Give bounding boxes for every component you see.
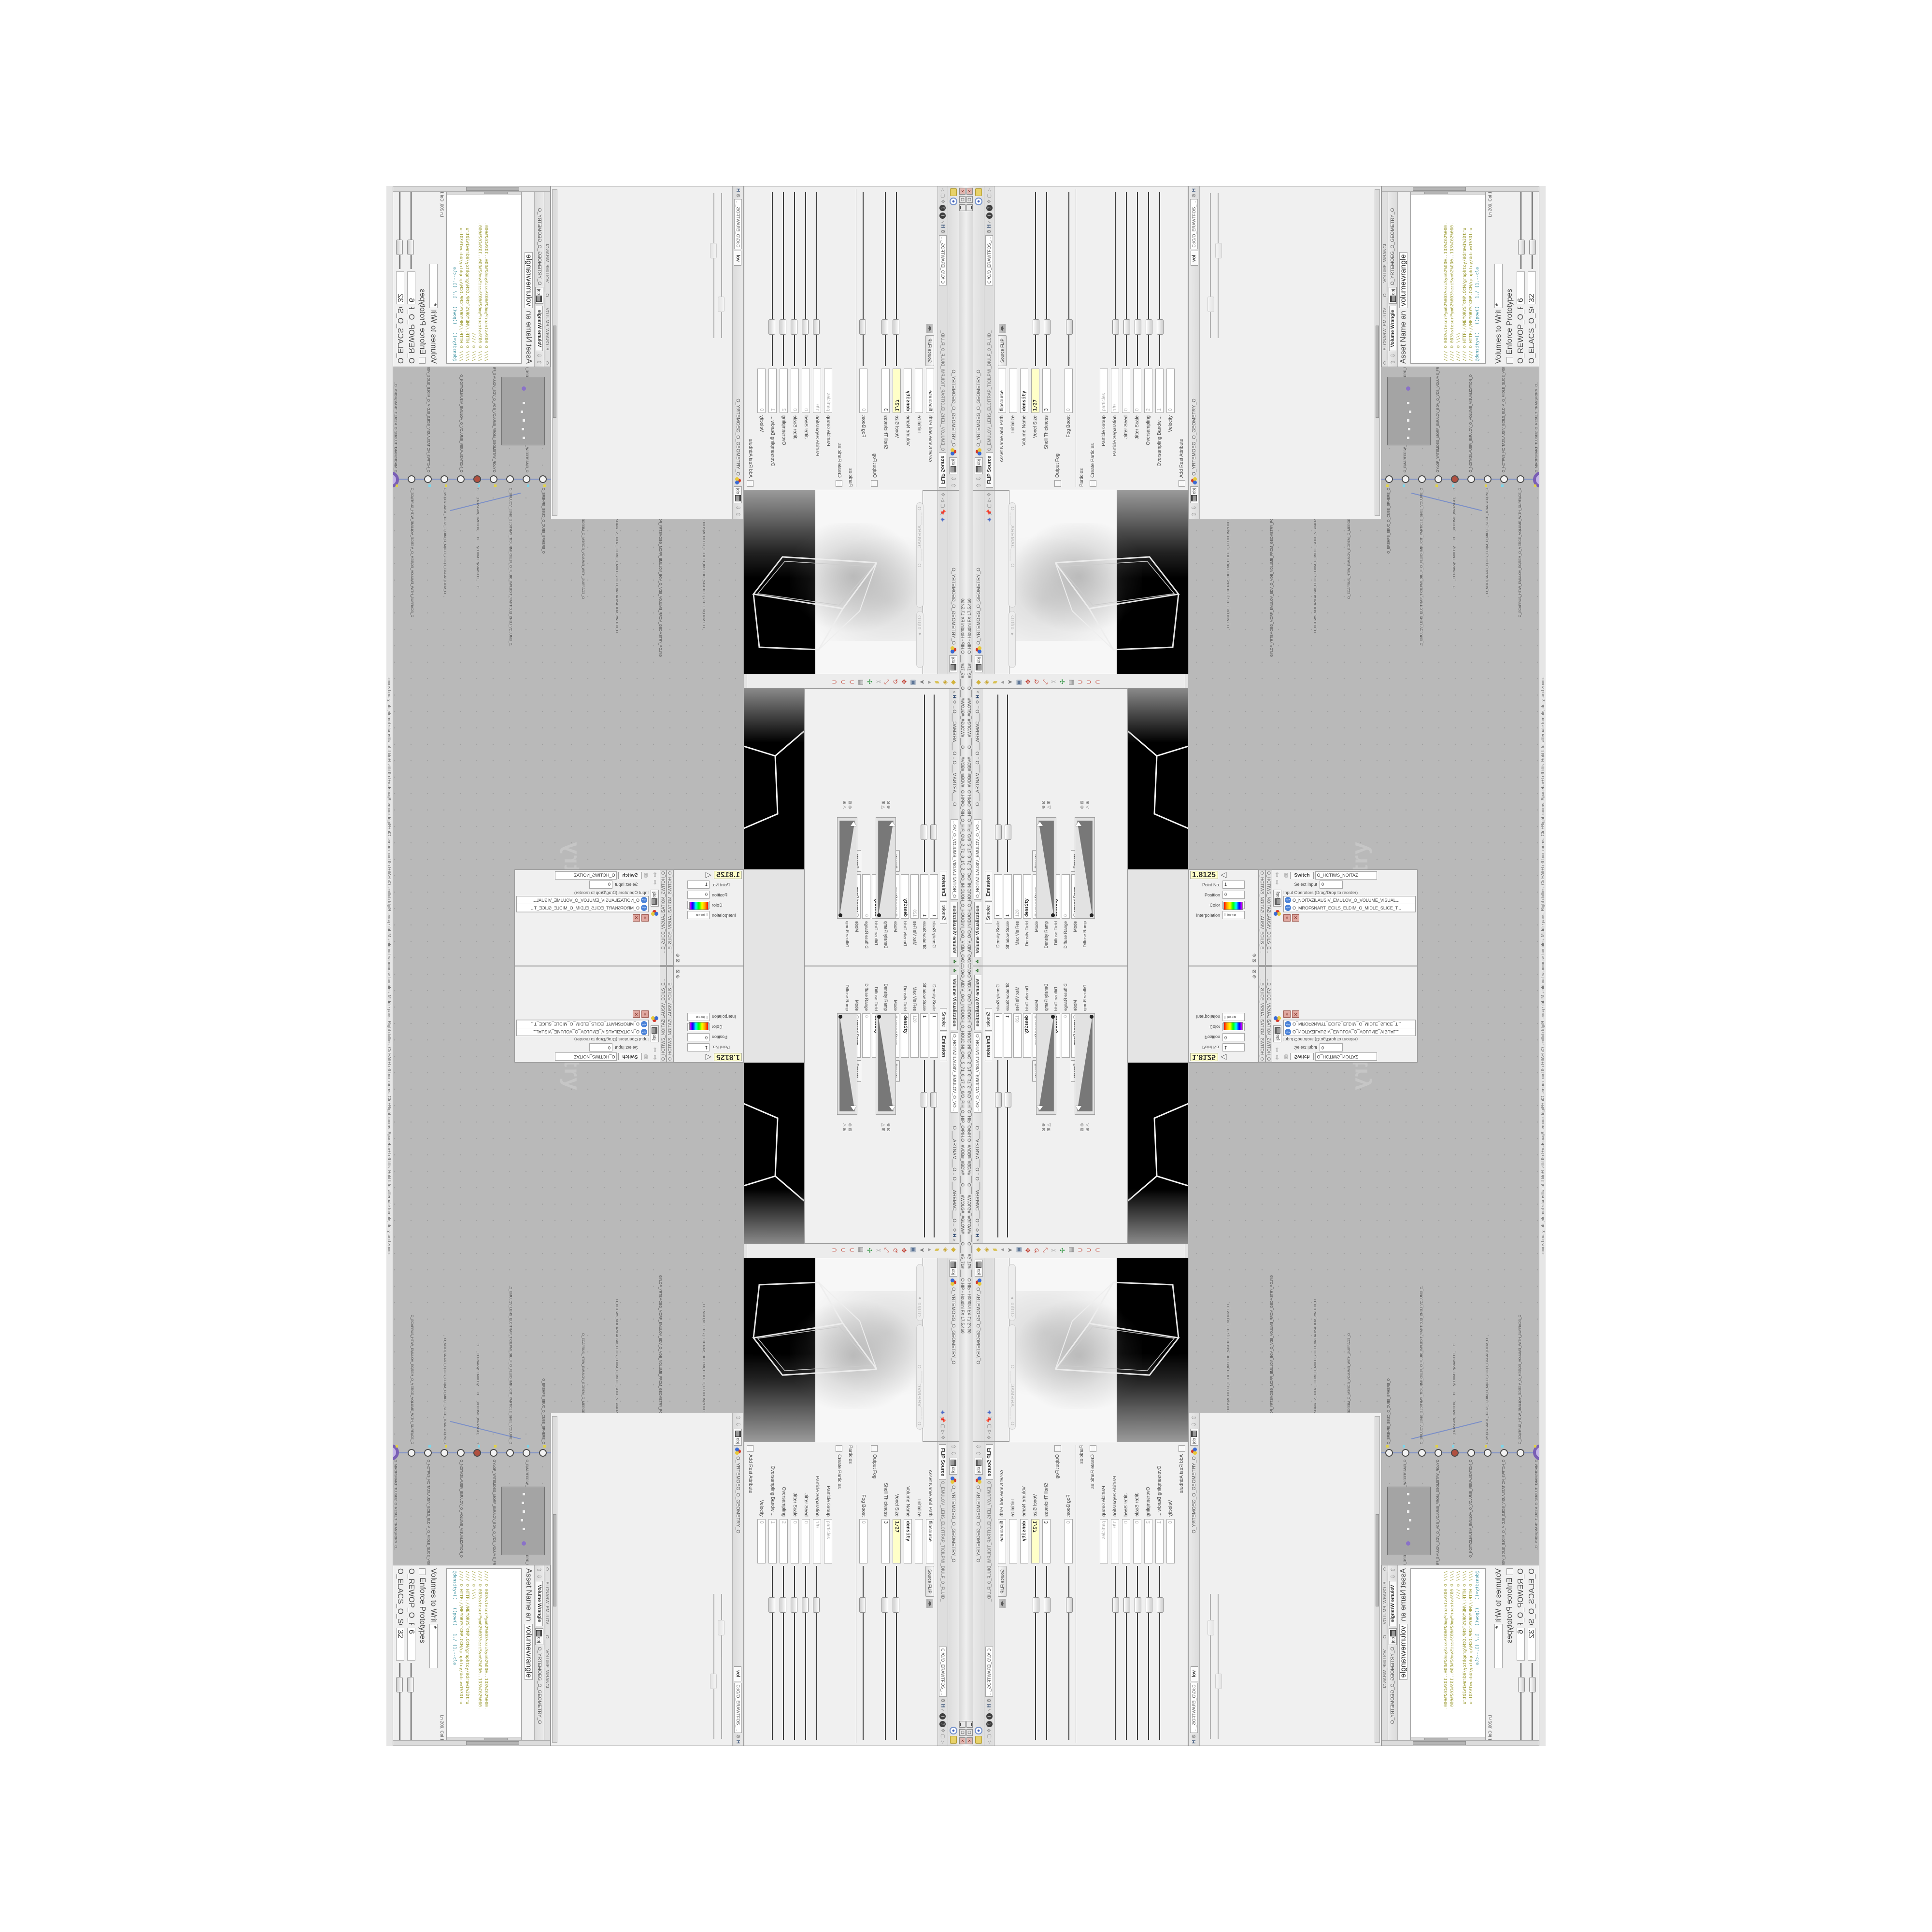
obj-context-chip[interactable]: obj (1389, 1628, 1397, 1645)
param-value-field[interactable]: 1/9 (1111, 1519, 1119, 1563)
node-flag[interactable] (1419, 1445, 1421, 1448)
checkbox[interactable] (871, 1445, 878, 1452)
viewport-icon[interactable]: 📌 (940, 510, 946, 516)
ramp-widget[interactable] (837, 817, 857, 919)
search-icon[interactable]: ⌕ (987, 220, 992, 223)
delete-input-button[interactable]: ✕ (1283, 1010, 1291, 1018)
ramp-widget[interactable] (1075, 817, 1095, 919)
faint-slider[interactable] (713, 193, 714, 338)
param-slider[interactable] (1046, 192, 1047, 366)
param-slider[interactable] (1520, 192, 1521, 269)
node-flag[interactable] (1452, 1445, 1454, 1448)
delete-input-button[interactable]: ✕ (641, 914, 649, 922)
reorder-icon[interactable]: ↩ (641, 905, 647, 911)
param-slider[interactable] (795, 192, 796, 366)
tool-icon[interactable]: ⤡ (884, 679, 889, 685)
param-slider[interactable] (1520, 1663, 1521, 1740)
param-slider[interactable] (1126, 192, 1127, 366)
node-flag[interactable] (494, 1445, 497, 1448)
asset-name-field[interactable]: volumewrangle (525, 1624, 533, 1680)
tab-switch[interactable]: Switch (1290, 872, 1313, 879)
info-icon[interactable]: i (940, 213, 946, 219)
reorder-icon[interactable]: ↩ (1285, 1021, 1291, 1027)
reorder-icon[interactable]: ↩ (1285, 897, 1291, 903)
maximize-button[interactable]: ❐ (960, 196, 966, 203)
viewport-icon[interactable]: ▷ (987, 498, 992, 502)
param-value-field[interactable]: density (1023, 874, 1031, 919)
sop-node[interactable] (473, 1449, 481, 1457)
param-value-field[interactable] (1009, 369, 1017, 413)
param-slider[interactable] (795, 1566, 796, 1740)
nav-up-icon[interactable]: ⇧ (1390, 1567, 1396, 1572)
param-slider[interactable] (863, 192, 864, 366)
param-value-field[interactable]: 32 (396, 1628, 404, 1661)
node-flag[interactable] (543, 484, 546, 487)
param-slider[interactable] (1532, 192, 1533, 269)
sticky-note-icon[interactable] (975, 188, 982, 196)
tool-icon[interactable]: ⤡ (1043, 1248, 1048, 1254)
vex-code-editor[interactable]: //// © 0D3%steserPym62%0D3%eziSym62%000.… (446, 1568, 522, 1743)
param-slider[interactable] (896, 1566, 897, 1740)
param-value-field[interactable]: 128 (911, 1013, 919, 1058)
nav-up-icon[interactable]: ⇧ (1275, 872, 1279, 878)
param-value-field[interactable]: 0 (1166, 1519, 1175, 1563)
tool-icon[interactable]: ◈ (943, 679, 948, 685)
obj-context-chip[interactable]: obj (535, 1628, 543, 1645)
sop-node[interactable] (1451, 475, 1459, 483)
param-value-field[interactable]: 128 (1013, 1013, 1022, 1058)
checkbox[interactable] (836, 480, 843, 487)
param-value-field[interactable]: 0 (791, 1519, 799, 1563)
tab-emission[interactable]: Emission (940, 1032, 947, 1061)
flip-path-field[interactable]: C:/O/O_ERAWTFOS_... (939, 235, 947, 285)
tab-flip-source[interactable]: FLIP Source (939, 452, 947, 488)
viewport-icon[interactable]: ◉ (987, 517, 992, 522)
tab-mantra[interactable]: O ___ARTNAM___O... (952, 1126, 957, 1175)
tool-icon[interactable]: ✂ (876, 1248, 881, 1254)
reorder-icon[interactable]: ↩ (641, 1029, 647, 1035)
node-flag[interactable] (396, 1445, 398, 1448)
tab-smoke[interactable]: Smoke (985, 901, 992, 924)
minimize-button[interactable]: ▁ (966, 1721, 973, 1728)
sop-node[interactable] (539, 1449, 547, 1457)
search-icon[interactable]: ⌕ (952, 691, 957, 694)
ramp-buttons[interactable]: ⊕ ⊠△ ⊞ (1080, 1120, 1090, 1135)
param-value-field[interactable]: 1 (1222, 881, 1245, 889)
param-value-field[interactable]: 0 (1122, 1519, 1130, 1563)
camera-pill[interactable]: O ____AREMAC____ O (916, 1324, 923, 1430)
flip-path-field[interactable]: C:/O/O_ERAWTFOS_... (985, 1647, 993, 1697)
checkbox[interactable] (1054, 480, 1061, 487)
close-button[interactable]: ✕ (966, 188, 973, 195)
operator-list-item[interactable]: ↩ O_NOITAZILAUSIV_EMULOV_O_VOLUME_VISUAL… (517, 1028, 648, 1036)
pin-target-icon[interactable] (950, 1727, 957, 1734)
param-value-field[interactable]: 2 (1144, 369, 1152, 413)
gear-icon[interactable]: ⚙ (987, 1698, 992, 1703)
sop-node[interactable] (1402, 475, 1409, 483)
wrangle-scrollbar[interactable] (1382, 186, 1546, 192)
param-slider[interactable] (1007, 695, 1008, 872)
param-slider[interactable] (1068, 1566, 1069, 1740)
node-flag[interactable] (1468, 1445, 1471, 1448)
minimize-button[interactable]: ▁ (966, 204, 973, 211)
tab-switch[interactable]: Switch (618, 872, 641, 879)
sop-node[interactable] (1402, 1449, 1409, 1457)
operator-list-item[interactable]: ↩ O_MROFSNART_ECILS_ELDIM_O_MIDLE_SLICE_… (1284, 904, 1415, 912)
camera-pill[interactable]: O ____AREMAC____ O (1009, 502, 1016, 608)
nav-down-icon[interactable]: ⇩ (951, 476, 956, 481)
tab-flip-source[interactable]: FLIP Source (939, 1444, 947, 1480)
param-value-field[interactable]: 1/9 (813, 1519, 821, 1563)
tool-icon[interactable]: ◈ (984, 1248, 989, 1254)
gear-icon[interactable]: ⚙ (987, 229, 992, 234)
viewport-icon[interactable]: ▷ (940, 498, 946, 502)
viewport-icon[interactable]: ✥ (940, 1435, 946, 1439)
sop-node[interactable] (408, 475, 415, 483)
viewport-icon[interactable]: ✥ (940, 493, 946, 497)
obj-context-chip[interactable]: obj (734, 1429, 742, 1446)
delete-input-button[interactable]: ✕ (641, 1010, 649, 1018)
maximize-button[interactable]: ❐ (966, 1729, 973, 1736)
param-slider[interactable] (1126, 1566, 1127, 1740)
param-value-field[interactable]: 0 (1222, 891, 1245, 899)
sop-node[interactable] (1500, 1449, 1508, 1457)
operator-list-item[interactable]: ↩ O_NOITAZILAUSIV_EMULOV_O_VOLUME_VISUAL… (1284, 1028, 1415, 1036)
node-flag[interactable] (1452, 484, 1454, 487)
asset-name-field[interactable]: volumewrangle (1399, 252, 1407, 308)
param-slider[interactable] (1159, 1566, 1160, 1740)
param-value-field[interactable]: 6 (407, 271, 415, 304)
param-value-field[interactable]: 0 (1133, 1519, 1141, 1563)
color-swatch[interactable] (689, 902, 709, 910)
node-flag[interactable] (412, 1445, 414, 1448)
param-value-field[interactable]: 1 (1155, 1519, 1164, 1563)
select-input-field[interactable]: 0 (1320, 1044, 1343, 1052)
sop-node[interactable] (1435, 475, 1442, 483)
delete-input-button[interactable]: ✕ (633, 1010, 640, 1018)
mid-path-field[interactable]: C:/O/O_ERAWTFOS_... (1190, 1683, 1198, 1733)
nav-up-icon[interactable]: ⇧ (1390, 360, 1396, 365)
ramp-buttons[interactable]: ⊕ ⊠△ ⊞ (1080, 797, 1090, 812)
enforce-checkbox[interactable] (419, 1568, 426, 1575)
tab-mantra[interactable]: O ___ARTNAM___O... (975, 1126, 980, 1175)
param-slider[interactable] (997, 695, 998, 872)
node-flag[interactable] (1386, 1445, 1389, 1448)
param-value-field[interactable]: 0 (802, 1519, 810, 1563)
tab-camera[interactable]: O ___AREMAC___O... (975, 706, 980, 755)
tool-icon[interactable]: ✣ (867, 679, 872, 685)
ramp-add-remove[interactable]: ⊕⊠ (676, 953, 680, 964)
param-value-field[interactable]: density (904, 369, 912, 413)
enforce-checkbox[interactable] (419, 357, 426, 364)
ortho-pill[interactable]: Ortho ▾ (916, 611, 923, 668)
param-slider[interactable] (772, 1566, 773, 1740)
param-value-field[interactable]: 0 (1062, 874, 1070, 919)
operator-list-item[interactable]: ↩ O_NOITAZILAUSIV_EMULOV_O_VOLUME_VISUAL… (1284, 896, 1415, 904)
nav-down-icon[interactable]: ⇩ (735, 505, 741, 510)
param-slider[interactable] (772, 192, 773, 366)
node-flag[interactable] (1386, 484, 1389, 487)
viewport-geometry-label[interactable]: O_YRTEMOEG_O_GEOMETRY_O (951, 1287, 956, 1364)
gear-icon[interactable]: ⚙ (736, 1734, 741, 1739)
sticky-note-icon[interactable] (975, 1736, 982, 1744)
tool-icon[interactable]: ➤ (1008, 679, 1013, 685)
tool-icon[interactable]: ◈ (984, 679, 989, 685)
search-icon[interactable]: ⌕ (940, 1709, 946, 1712)
param-value-field[interactable]: 0 (1133, 369, 1141, 413)
camera-pill[interactable]: O ____AREMAC____ O (1009, 1324, 1016, 1430)
ramp-buttons[interactable]: ⊕ ⊠△ ⊞ (881, 1120, 891, 1135)
checkbox[interactable] (1090, 480, 1096, 487)
switch-name-field[interactable]: O_HCTIWS_NOITAZ (555, 1052, 617, 1061)
asset-name-field[interactable]: flipsource (926, 1519, 934, 1563)
tool-icon[interactable]: ⊃ (849, 1248, 854, 1254)
param-value-field[interactable]: 0 (859, 369, 867, 413)
tool-icon[interactable]: ✣ (867, 1248, 872, 1254)
asset-name-field[interactable]: volumewrangle (1399, 1624, 1407, 1680)
checkbox[interactable] (747, 1445, 754, 1452)
node-flag[interactable] (543, 1445, 546, 1448)
breadcrumb[interactable]: O_YRTEMOEG_O_GEOMETRY_O (537, 1647, 542, 1724)
node-flag[interactable] (428, 1445, 431, 1448)
sop-node[interactable] (1484, 475, 1492, 483)
param-slider[interactable] (1046, 1566, 1047, 1740)
tool-icon[interactable]: ⊂ (1095, 1248, 1100, 1254)
param-value-field[interactable]: 2 (780, 369, 788, 413)
breadcrumb[interactable]: O_YRTEMOEG_O_GEOMETRY_O (1192, 398, 1197, 476)
param-value-field[interactable]: 0 (1166, 369, 1175, 413)
tab-vol[interactable]: vol (1191, 251, 1198, 265)
close-button[interactable]: ✕ (960, 1737, 966, 1744)
sop-node[interactable] (440, 1449, 448, 1457)
viewport-icon[interactable]: ◉ (940, 1410, 946, 1415)
sop-node[interactable] (1517, 1449, 1524, 1457)
volumes-field[interactable]: * (429, 1624, 438, 1668)
tool-icon[interactable]: ✂ (876, 679, 881, 685)
tool-icon[interactable]: ◈ (943, 1248, 948, 1254)
tab-mantra[interactable]: O ___ARTNAM___O... (952, 757, 957, 806)
node-flag[interactable] (1534, 484, 1536, 487)
faint-slider[interactable] (721, 1594, 722, 1739)
node-flag[interactable] (445, 1445, 447, 1448)
enforce-checkbox[interactable] (1506, 357, 1513, 364)
gear-icon[interactable]: ⚙ (1192, 1734, 1197, 1739)
tool-icon[interactable]: ◂ (1001, 679, 1004, 685)
param-slider[interactable] (400, 192, 401, 269)
horizontal-scrollbar[interactable] (552, 189, 557, 516)
nav-down-icon[interactable]: ⇩ (735, 1422, 741, 1427)
search-icon[interactable]: ⌕ (975, 1238, 980, 1241)
switch-name-field[interactable]: O_HCTIWS_NOITAZ (1315, 871, 1377, 880)
obj-context-chip[interactable]: obj (1273, 890, 1281, 907)
node-flag[interactable] (511, 1445, 513, 1448)
param-value-field[interactable]: 1 (1222, 1043, 1245, 1051)
param-value-field[interactable]: 0 (859, 1519, 867, 1563)
tool-icon[interactable]: ▥ (1068, 679, 1074, 685)
sop-node[interactable] (490, 1449, 497, 1457)
mid-path-field[interactable]: C:/O/O_ERAWTFOS_... (1190, 199, 1198, 249)
viewport-icon[interactable]: ▢ (940, 1424, 946, 1428)
reorder-icon[interactable]: ↩ (1285, 1029, 1291, 1035)
param-value-field[interactable] (1009, 1519, 1017, 1563)
tool-icon[interactable]: ◂ (928, 1248, 931, 1254)
faint-slider[interactable] (721, 193, 722, 338)
nav-down-icon[interactable]: ⇩ (653, 1047, 657, 1052)
param-value-field[interactable]: 1 (921, 1013, 929, 1058)
tool-icon[interactable]: ▥ (858, 1248, 864, 1254)
asset-name-field[interactable]: flipsource (998, 369, 1006, 413)
checkbox[interactable] (1090, 1445, 1096, 1452)
param-value-field[interactable]: 0 (802, 369, 810, 413)
enforce-checkbox[interactable] (1506, 1568, 1513, 1575)
delete-input-button[interactable]: ✕ (1292, 914, 1299, 922)
param-value-field[interactable]: 0 (757, 1519, 766, 1563)
param-value-field[interactable]: 1/27 (1031, 369, 1039, 413)
sop-node[interactable] (1484, 1449, 1492, 1457)
ramp-value-field[interactable]: 1.8125 (1190, 1053, 1218, 1062)
gear-icon[interactable]: ⚙ (940, 229, 946, 234)
gear-icon[interactable]: ⚙ (975, 700, 980, 704)
reorder-icon[interactable]: ↩ (641, 1021, 647, 1027)
tool-icon[interactable]: ◆ (951, 1248, 956, 1254)
nav-up-icon[interactable]: ⇧ (1275, 1054, 1279, 1060)
ramp-widget[interactable] (837, 1013, 857, 1115)
node-flag[interactable] (428, 484, 431, 487)
operator-list-item[interactable]: ↩ O_MROFSNART_ECILS_ELDIM_O_MIDLE_SLICE_… (517, 1020, 648, 1028)
pin-target-icon[interactable] (975, 198, 982, 205)
param-slider[interactable] (817, 192, 818, 366)
obj-context-chip[interactable]: obj (651, 890, 659, 907)
viewport-icon[interactable]: ▢ (987, 1424, 992, 1428)
sop-node[interactable] (457, 1449, 465, 1457)
tool-icon[interactable]: ✥ (901, 1248, 907, 1254)
nav-down-icon[interactable]: ⇩ (976, 1451, 981, 1456)
tool-icon[interactable]: ↻ (1034, 679, 1039, 685)
param-slider[interactable] (400, 1663, 401, 1740)
sop-node[interactable] (473, 475, 481, 483)
param-value-field[interactable]: 3 (1042, 369, 1051, 413)
flip-path-field[interactable]: C:/O/O_ERAWTFOS_... (985, 235, 993, 285)
checkbox[interactable] (836, 1445, 843, 1452)
wrangle-scrollbar[interactable] (386, 186, 550, 192)
tab-volume-wrangle[interactable]: Volume Wrangle (1389, 1581, 1396, 1626)
tool-icon[interactable]: ↻ (1034, 1248, 1039, 1254)
sop-node[interactable] (1385, 1449, 1393, 1457)
tool-icon[interactable]: ⊃ (1086, 679, 1092, 685)
gear-icon[interactable]: ⚙ (952, 1228, 957, 1232)
nav-down-icon[interactable]: ⇩ (1390, 1574, 1396, 1579)
tab-volume-visualization[interactable]: Volume Visualization (974, 975, 981, 1030)
select-input-field[interactable]: 0 (589, 1044, 612, 1052)
param-value-field[interactable]: 0 (1222, 1033, 1245, 1041)
node-flag[interactable] (494, 484, 497, 487)
maximize-button[interactable]: ❐ (960, 1729, 966, 1736)
param-slider[interactable] (924, 1060, 925, 1237)
sop-node[interactable] (1517, 475, 1524, 483)
reorder-icon[interactable]: ↩ (641, 897, 647, 903)
tab-vol[interactable]: vol (735, 251, 742, 265)
tab-vol[interactable]: vol (735, 1666, 742, 1681)
nav-up-icon[interactable]: ⇧ (951, 483, 956, 488)
tab-volume-visualization[interactable]: Volume Visualization (951, 902, 958, 957)
breadcrumb[interactable]: O_YRTEMOEG_O_GEOMETRY_O (1390, 1647, 1395, 1724)
tab-camera[interactable]: O ___AREMAC___O... (975, 1177, 980, 1226)
nav-down-icon[interactable]: ⇩ (1191, 1422, 1197, 1427)
obj-context-chip[interactable]: obj (950, 1458, 958, 1475)
tool-icon[interactable]: ⤡ (884, 1248, 889, 1254)
nav-up-icon[interactable]: ⇧ (537, 360, 542, 365)
network-minimap[interactable] (501, 377, 545, 445)
param-value-field[interactable]: density (901, 874, 909, 919)
info-icon[interactable]: i (986, 213, 993, 219)
tool-icon[interactable]: ↻ (893, 1248, 898, 1254)
param-value-field[interactable]: particles (824, 1519, 832, 1563)
param-slider[interactable] (1068, 192, 1069, 366)
nav-down-icon[interactable]: ⇩ (976, 476, 981, 481)
gear-icon[interactable]: ⚙ (975, 1228, 980, 1232)
ortho-pill[interactable]: Ortho ▾ (916, 1264, 923, 1321)
node-flag[interactable] (1419, 484, 1421, 487)
viewport-icon[interactable]: ▷ (987, 1430, 992, 1434)
scene-viewport[interactable] (743, 490, 923, 674)
horizontal-scrollbar[interactable] (552, 1416, 557, 1743)
help-icon[interactable]: ? (940, 205, 946, 211)
viewport-geometry-label[interactable]: O_YRTEMOEG_O_GEOMETRY_O (976, 1287, 981, 1364)
param-value-field[interactable]: particles (824, 369, 832, 413)
param-slider[interactable] (783, 1566, 784, 1740)
sop-node[interactable] (424, 475, 432, 483)
sop-node[interactable] (457, 475, 465, 483)
param-value-field[interactable]: 0 (757, 369, 766, 413)
param-value-field[interactable]: 0 (1065, 369, 1073, 413)
ramp-value-field[interactable]: 1.8125 (714, 871, 742, 879)
param-value-field[interactable]: 0 (1122, 369, 1130, 413)
viewport-icon[interactable]: ▢ (940, 503, 946, 508)
tool-icon[interactable]: ▰ (993, 679, 997, 685)
tool-icon[interactable]: ⊃ (849, 679, 854, 685)
param-value-field[interactable]: 0 (1062, 1013, 1070, 1058)
param-value-field[interactable]: particles (1100, 1519, 1108, 1563)
sop-node[interactable] (1500, 475, 1508, 483)
scene-viewport[interactable] (743, 1258, 923, 1442)
param-slider[interactable] (1137, 192, 1138, 366)
operator-list-item[interactable]: ↩ O_MROFSNART_ECILS_ELDIM_O_MIDLE_SLICE_… (1284, 1020, 1415, 1028)
tool-icon[interactable]: ▣ (1016, 1248, 1022, 1254)
network-minimap[interactable] (1387, 377, 1431, 445)
param-value-field[interactable]: 1 (930, 874, 938, 919)
breadcrumb[interactable]: O_YRTEMOEG_O_GEOMETRY_O (736, 1456, 741, 1534)
select-input-field[interactable]: 0 (589, 881, 612, 889)
obj-context-chip[interactable]: obj (950, 1260, 958, 1277)
tool-icon[interactable]: ▥ (1068, 1248, 1074, 1254)
param-value-field[interactable]: 32 (1528, 1628, 1536, 1661)
param-value-field[interactable]: 2 (1144, 1519, 1152, 1563)
obj-context-chip[interactable]: obj (975, 655, 983, 672)
param-slider[interactable] (1007, 1060, 1008, 1237)
node-flag[interactable] (1534, 1445, 1536, 1448)
help-icon[interactable]: ? (986, 1721, 993, 1727)
param-value-field[interactable]: Linear (687, 911, 710, 919)
node-flag[interactable] (1518, 484, 1520, 487)
node-flag[interactable] (1435, 484, 1438, 487)
param-value-field[interactable]: 3 (881, 369, 890, 413)
ramp-value-field[interactable]: 1.8125 (1190, 871, 1218, 879)
ramp-add-remove[interactable]: ⊕⊠ (676, 968, 680, 979)
tab-emission[interactable]: Emission (985, 1032, 992, 1061)
node-flag[interactable] (1468, 484, 1471, 487)
param-slider[interactable] (806, 192, 807, 366)
horizontal-scrollbar[interactable] (1375, 1416, 1380, 1743)
